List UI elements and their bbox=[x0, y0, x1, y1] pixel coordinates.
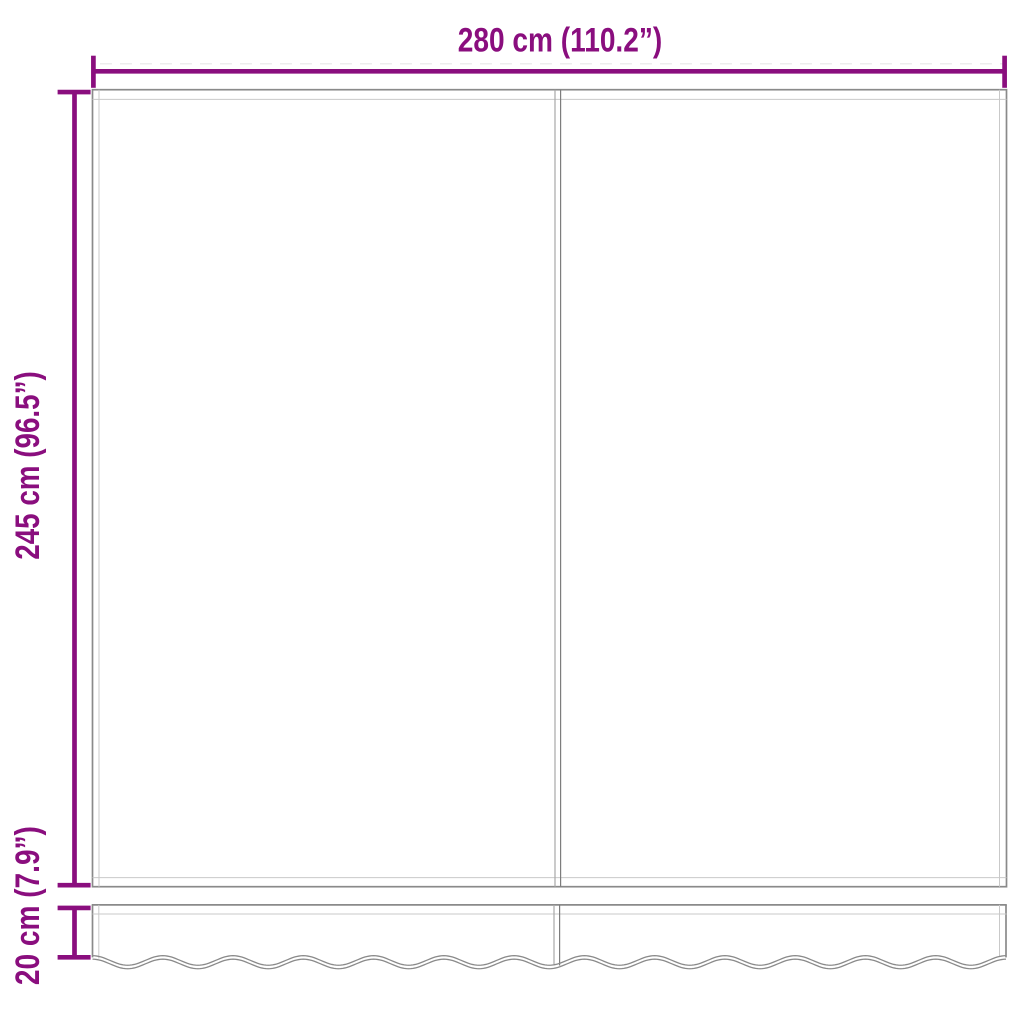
svg-text:280 cm (110.2”): 280 cm (110.2”) bbox=[458, 22, 663, 60]
svg-text:245 cm (96.5”): 245 cm (96.5”) bbox=[9, 371, 47, 560]
svg-text:20 cm (7.9”): 20 cm (7.9”) bbox=[9, 826, 47, 985]
